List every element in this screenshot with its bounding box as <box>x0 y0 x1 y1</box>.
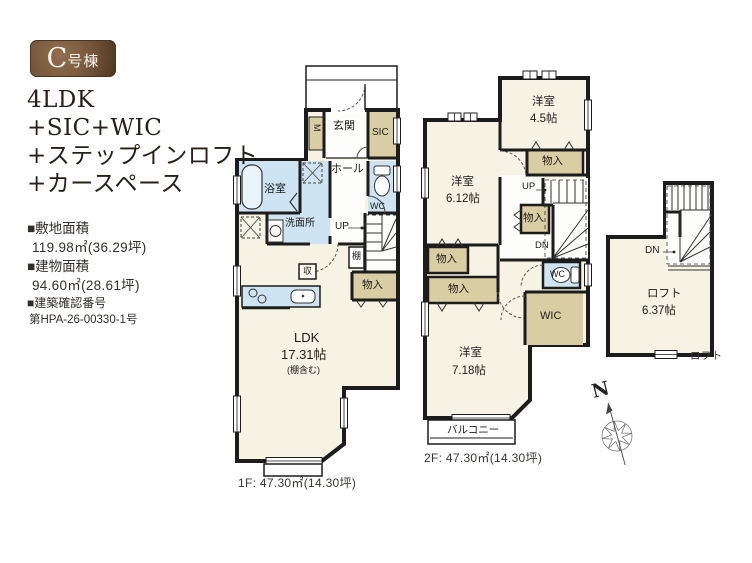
ldk-note-label: (棚含む) <box>287 366 320 375</box>
loft-window <box>655 351 677 359</box>
floorplan-page: C号棟 4LDK +SIC+WIC +ステップインロフト +カースペース ■敷地… <box>0 0 752 563</box>
layout-title-line3: +ステップインロフト <box>27 142 258 170</box>
closet2-label: 物入 <box>523 213 544 224</box>
room-label-sic: SIC <box>372 128 389 138</box>
permit-label: ■建築確認番号 <box>27 295 147 312</box>
room1-name-label: 洋室 <box>532 97 555 109</box>
meter-box <box>309 117 323 150</box>
balcony-label: バルコニー <box>447 425 499 436</box>
floor2-caption: 2F: 47.30㎡(14.30坪) <box>424 452 542 464</box>
room-label-entrance: 玄関 <box>333 121 355 132</box>
closet-label-1f: 物入 <box>362 280 383 291</box>
ldk-name-label: LDK <box>294 331 319 344</box>
room-label-meter: M <box>312 124 321 132</box>
room-label-wc-2f: WC <box>550 270 565 279</box>
building-area-value: 94.60㎡(28.61坪) <box>27 276 147 295</box>
unit-badge-letter: C <box>47 45 68 72</box>
stairs-up-label-2f: UP <box>522 182 535 192</box>
layout-title-line4: +カースペース <box>27 170 258 198</box>
room3-size-label: 7.18帖 <box>452 366 486 378</box>
building-area-label: ■建物面積 <box>27 257 147 276</box>
wic-label: WIC <box>540 311 561 322</box>
site-area-label: ■敷地面積 <box>27 219 147 238</box>
toilet-symbol-1f <box>374 166 390 196</box>
unit-badge: C号棟 <box>30 40 116 77</box>
floor1-caption: 1F: 47.30㎡(14.30坪) <box>238 477 356 489</box>
room1-size-label: 4.5帖 <box>530 114 558 126</box>
room-label-wc-1f: WC <box>370 202 385 211</box>
closet4-label: 物入 <box>448 284 469 295</box>
room2-name-label: 洋室 <box>451 177 474 189</box>
loft-name-label: ロフト <box>647 289 682 301</box>
room-label-washroom: 洗面所 <box>285 219 315 229</box>
closet3-label: 物入 <box>436 254 457 265</box>
room2-size-label: 6.12帖 <box>446 194 480 206</box>
room3-name-label: 洋室 <box>459 348 482 360</box>
room-label-bath: 浴室 <box>264 184 286 195</box>
stairs-dn-label-loft: DN <box>645 246 659 256</box>
north-arrowhead <box>604 403 613 415</box>
terrace <box>264 464 322 476</box>
sink-symbol <box>268 220 283 242</box>
stairs-dn-label-2f: DN <box>535 241 549 251</box>
compass-rose <box>596 400 637 468</box>
kitchen-counter <box>242 286 320 308</box>
shelf-label: 棚 <box>352 252 361 261</box>
ldk-size-label: 17.31帖 <box>281 348 327 361</box>
layout-title: 4LDK +SIC+WIC +ステップインロフト +カースペース <box>27 86 258 198</box>
storage-label: 収 <box>303 267 312 276</box>
stairs-up-label-1f: UP <box>335 222 349 232</box>
closet1-label: 物入 <box>542 156 563 167</box>
property-specs: ■敷地面積 119.98㎡(36.29坪) ■建物面積 94.60㎡(28.61… <box>27 219 147 328</box>
layout-title-line2: +SIC+WIC <box>27 114 258 142</box>
site-area-value: 119.98㎡(36.29坪) <box>27 238 147 257</box>
layout-title-line1: 4LDK <box>27 86 258 114</box>
room-label-hall: ホール <box>331 164 364 175</box>
unit-badge-suffix: 号棟 <box>67 46 99 71</box>
loft-plan <box>608 183 712 359</box>
loft-size-label: 6.37帖 <box>642 306 676 318</box>
permit-value: 第HPA-26-00330-1号 <box>27 312 147 328</box>
loft-caption: ロフト <box>690 351 722 362</box>
porch <box>306 66 397 110</box>
